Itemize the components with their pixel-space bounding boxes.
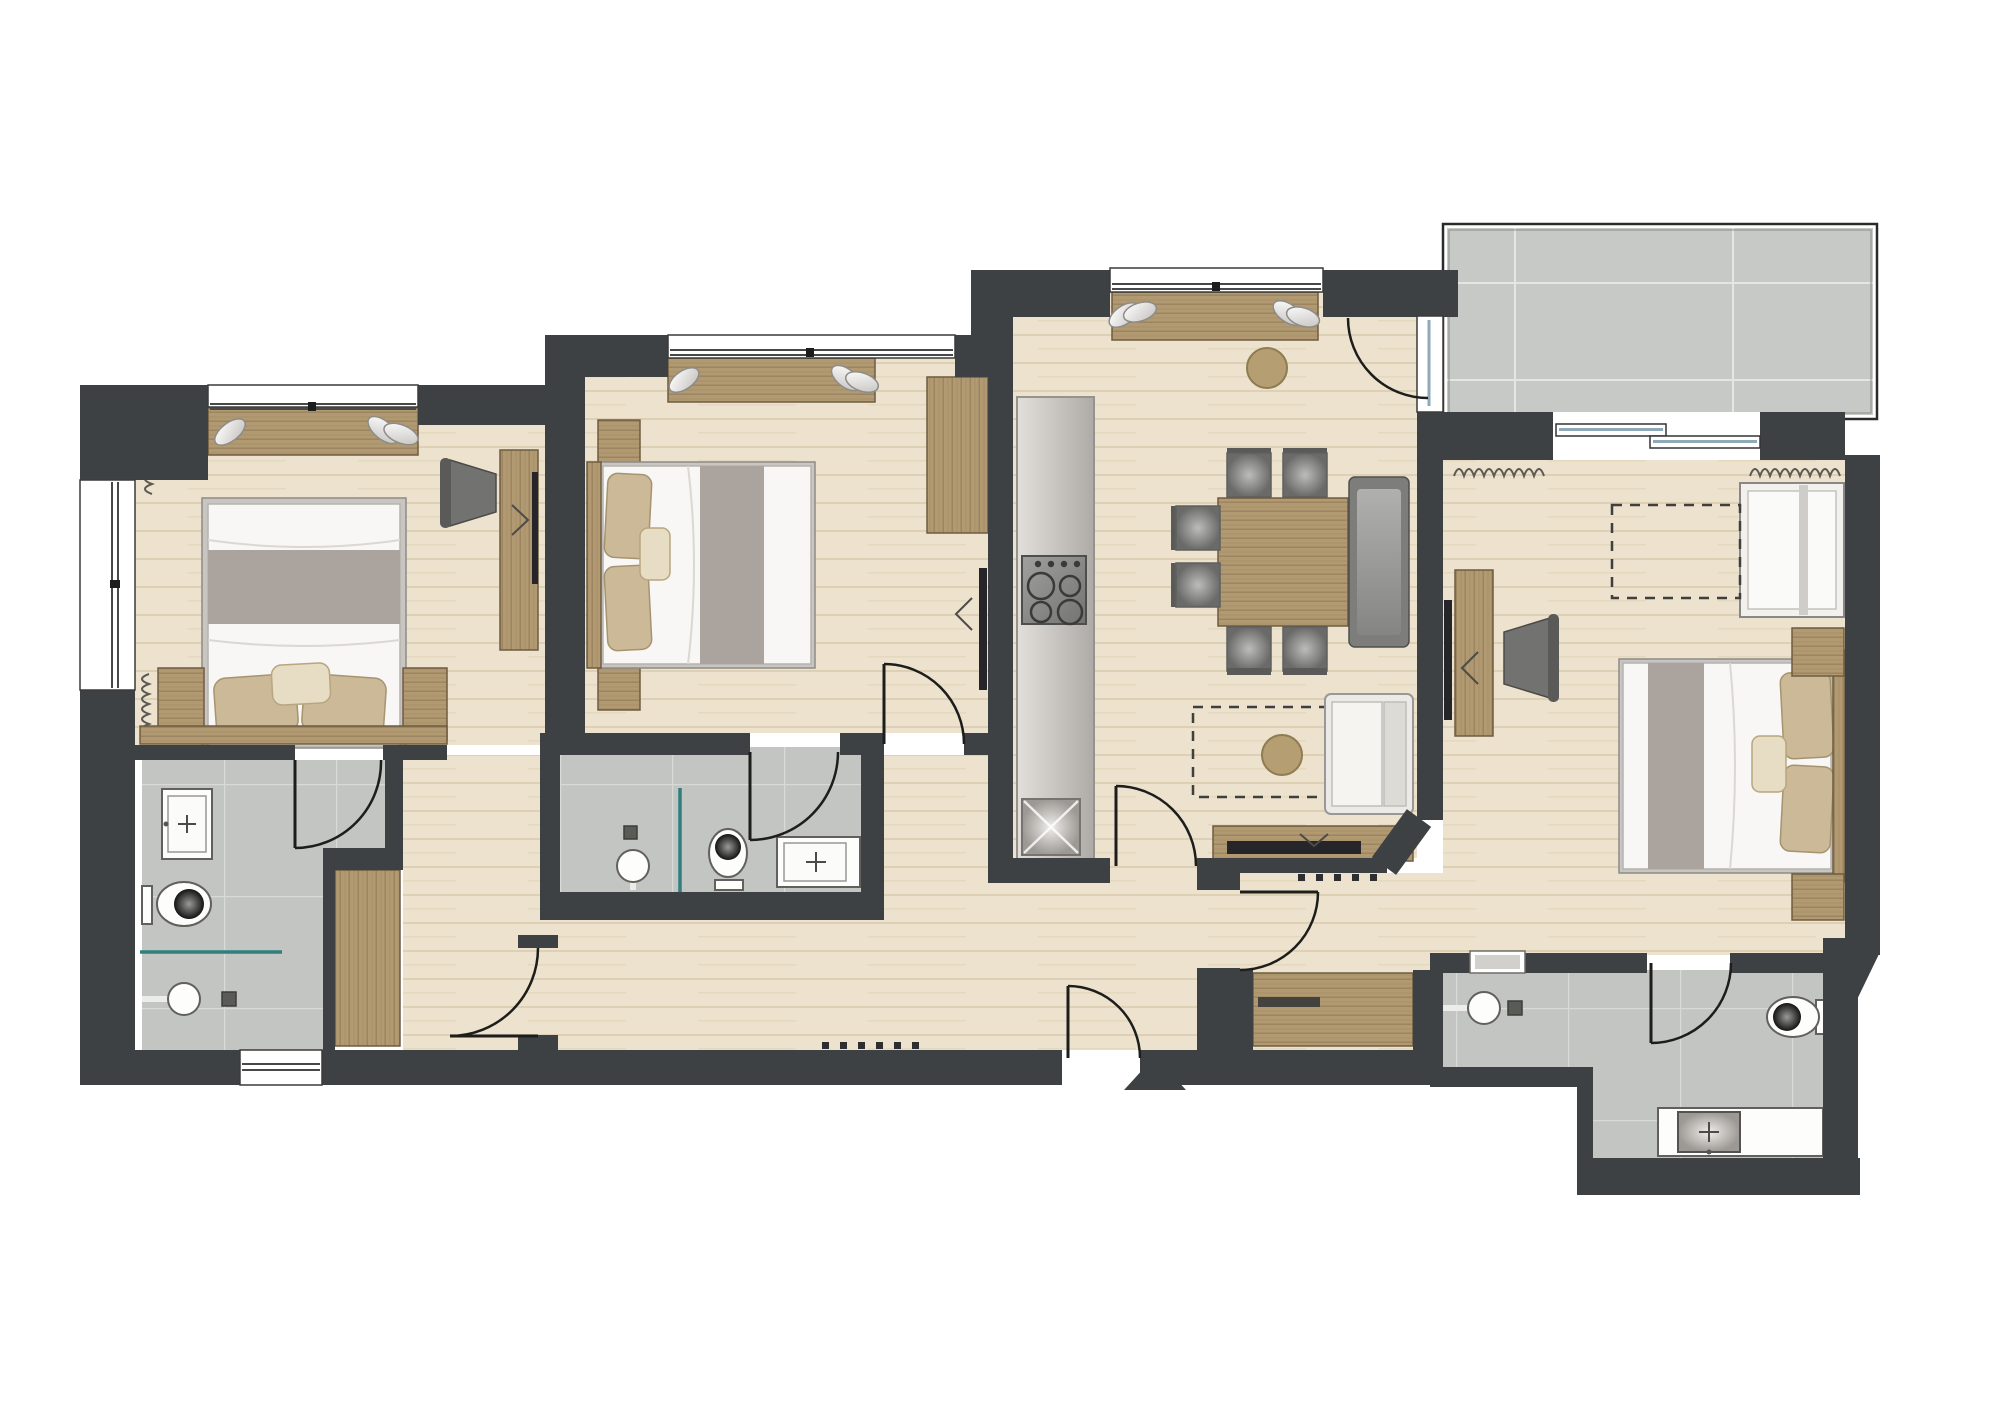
settee-bench (1349, 477, 1409, 647)
toilet (709, 829, 747, 890)
shower-head (1468, 992, 1500, 1024)
crib (1740, 483, 1844, 617)
stove (1022, 556, 1086, 624)
vanity-sink (1658, 1108, 1823, 1156)
dining-chair (1171, 506, 1220, 550)
east-corridor (1253, 973, 1413, 1046)
window-bedroom-2-top (668, 335, 955, 358)
wall-tv (979, 568, 987, 690)
tv-on-dresser (532, 472, 538, 584)
nightstand (598, 420, 640, 466)
wardrobe (335, 870, 400, 1046)
niche-window-bathroom-3 (1470, 951, 1525, 973)
balcony-sliding-door (1553, 412, 1760, 460)
floor-drain (222, 992, 236, 1006)
double-bed (1619, 650, 1845, 882)
dining-chair (1283, 448, 1327, 497)
hall-floor-a (540, 920, 1140, 1050)
wardrobe-shelf (1258, 997, 1320, 1007)
dining-chair (1227, 448, 1271, 497)
floor-plan-drawing (0, 0, 2000, 1400)
balcony-floor (1447, 228, 1873, 415)
floor-drain (624, 826, 637, 839)
armchair (1325, 694, 1413, 814)
window-living-top (1110, 268, 1323, 292)
pouf (1262, 735, 1302, 775)
nightstand (1792, 628, 1844, 676)
shower-head (617, 850, 649, 882)
window-bedroom-1-top (208, 385, 418, 411)
toilet (142, 882, 211, 926)
kitchen-counter (1017, 397, 1094, 860)
dining-chair (1283, 627, 1327, 675)
wardrobe (1253, 973, 1413, 1046)
wall-tv (1444, 600, 1452, 720)
floor-drain (1508, 1001, 1522, 1015)
floor-plan-page (0, 0, 2000, 1400)
corridor-2-floor (884, 755, 988, 920)
shower-head (168, 983, 200, 1015)
window-bathroom-1 (240, 1050, 322, 1085)
dining-chair (1227, 627, 1271, 675)
desk-unit (1455, 570, 1493, 736)
dining-chair (1171, 563, 1220, 607)
toilet (1767, 997, 1825, 1037)
wardrobe (927, 377, 988, 533)
nightstand (1792, 874, 1844, 920)
dining-table (1218, 498, 1348, 626)
window-bedroom-1-left (80, 480, 135, 690)
double-bed (202, 498, 406, 748)
balcony (1443, 224, 1877, 419)
kitchen-sink (1022, 799, 1080, 855)
headboard (140, 726, 447, 744)
pouf (1247, 348, 1287, 388)
double-bed (587, 462, 815, 668)
kitchen (1017, 397, 1094, 860)
nightstand (598, 666, 640, 710)
vanity-sink (162, 789, 212, 859)
corridor-1-floor (403, 755, 540, 1050)
vanity-sink (777, 837, 860, 887)
